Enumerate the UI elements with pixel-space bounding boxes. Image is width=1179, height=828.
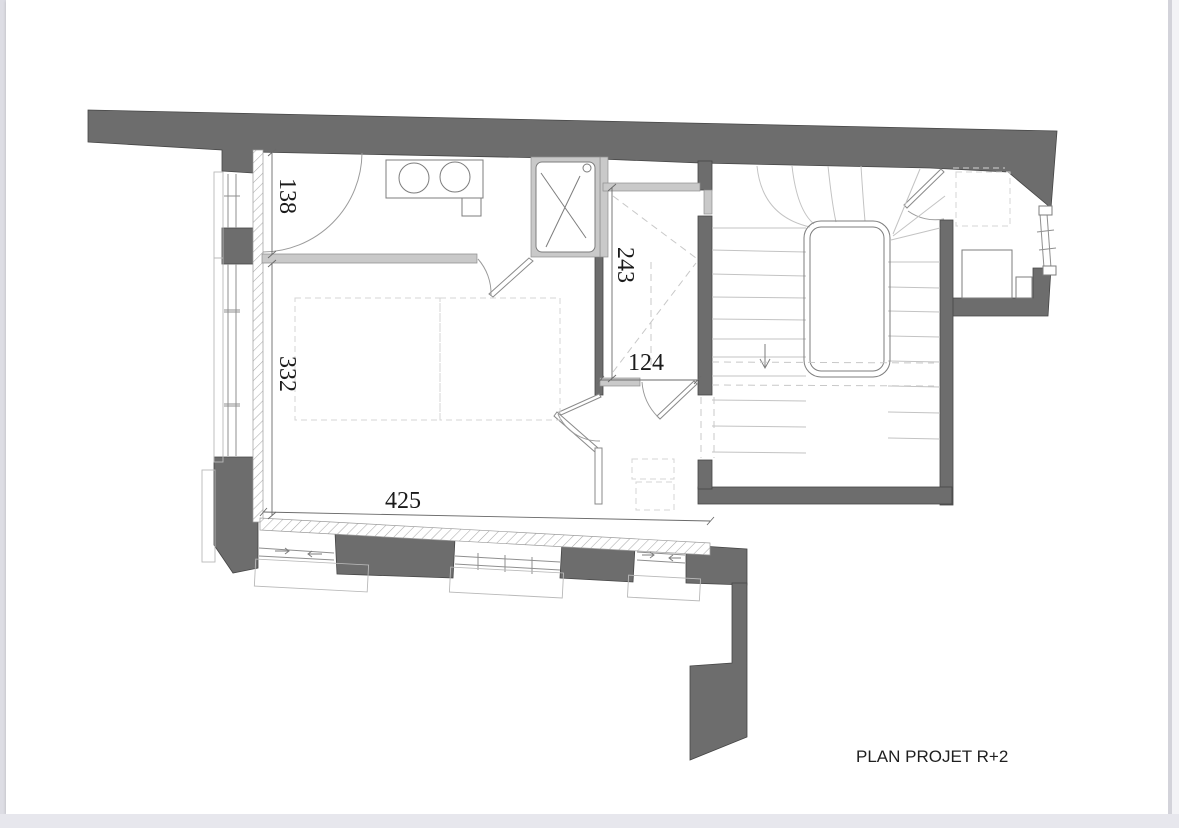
slope-zone-outline	[440, 298, 560, 420]
left-window-main	[224, 264, 240, 456]
dim-entry-depth: 138	[268, 149, 300, 258]
shower-right-wall	[600, 157, 608, 257]
corridor-right-wall-low	[698, 460, 712, 489]
plan-caption: PLAN PROJET R+2	[856, 747, 1008, 766]
hall-door	[642, 381, 697, 419]
dim-425-label: 425	[385, 488, 421, 514]
bed-outline	[295, 298, 440, 420]
dim-124-label: 124	[628, 350, 664, 376]
headroom-dash-1	[712, 362, 934, 363]
left-wall-pier	[222, 228, 258, 264]
entry-door-jamb	[704, 190, 712, 214]
left-sill-main	[214, 258, 223, 462]
right-window	[1037, 206, 1056, 275]
attic-room-items	[956, 172, 1032, 298]
corridor-right-wall-mid	[698, 216, 712, 395]
corridor-bottom-stub	[600, 378, 640, 386]
right-wall-chunk	[952, 268, 1051, 316]
dressing-side-wall	[595, 448, 602, 504]
bedroom-partition	[262, 254, 477, 263]
left-window-upper	[224, 174, 240, 228]
dimensions: 138 332 243 124 425	[260, 149, 714, 525]
dim-bedroom-width: 425	[260, 488, 714, 525]
left-wall-hatch	[253, 150, 263, 522]
bedroom-door	[478, 258, 533, 297]
stairhall-bottom-wall	[698, 487, 952, 504]
stair-arrow	[760, 344, 770, 368]
stair-void-outer	[804, 221, 890, 377]
dressing-angled-wall	[554, 412, 598, 452]
south-stub-wall	[690, 583, 747, 760]
dim-243-label: 243	[612, 247, 638, 283]
stair-steps	[712, 166, 945, 453]
dim-332-label: 332	[274, 356, 300, 392]
left-sill-lower	[202, 470, 215, 562]
corridor-top-wall	[603, 183, 700, 191]
dim-138-label: 138	[274, 178, 300, 214]
shower	[531, 157, 600, 257]
bottom-window-2	[449, 553, 563, 598]
staircase	[712, 166, 945, 453]
floor-plan-drawing: 138 332 243 124 425 PLAN PROJET R+2	[0, 0, 1179, 828]
bedroom-hall-wall	[595, 257, 603, 395]
stair-void-inner	[810, 227, 884, 371]
hall-furniture	[632, 459, 674, 510]
left-wall-corner-pier	[214, 457, 258, 573]
kitchen-counter	[386, 160, 483, 216]
slope-dashes	[295, 168, 1005, 458]
bottom-wall-hatch	[260, 518, 710, 555]
stairhall-right-wall	[940, 220, 953, 505]
